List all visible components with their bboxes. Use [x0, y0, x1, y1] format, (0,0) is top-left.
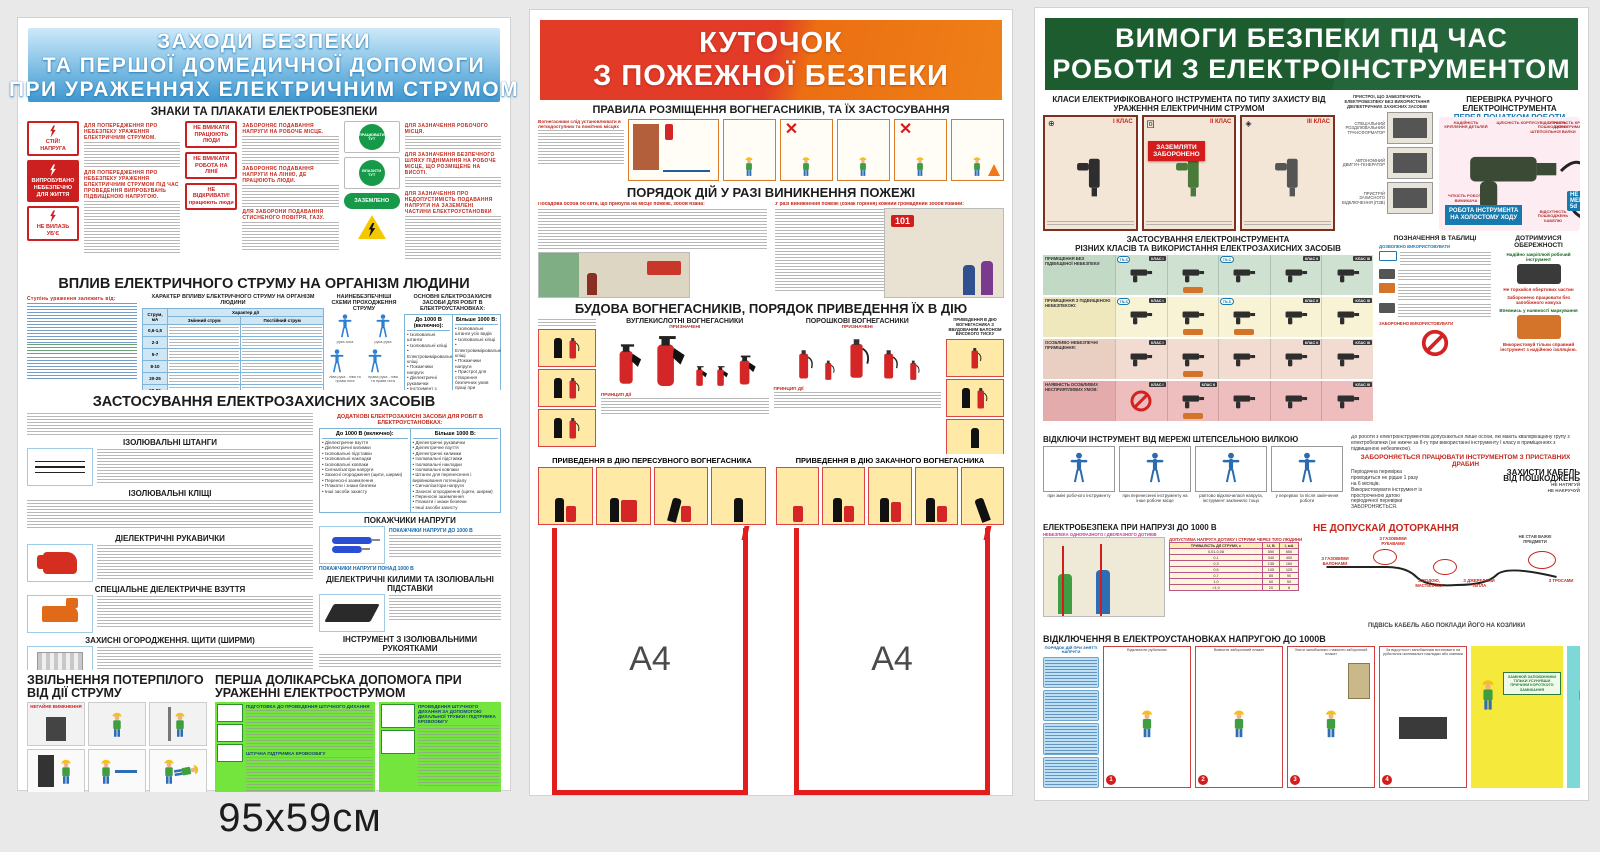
illegible-text [27, 344, 137, 356]
drill-icon [1335, 267, 1361, 283]
sign-do-not-open: НЕ ВІДКРИВАТИ!працюють люди [185, 183, 237, 210]
a4-pocket-right[interactable]: A4 [794, 528, 990, 795]
generator-image [1387, 147, 1433, 179]
admission-paragraph: Використовувати інструмент із прострочен… [1351, 488, 1424, 511]
list-item: Ізолювальні кліщі [407, 343, 450, 348]
step-pictogram [946, 339, 1004, 377]
poster1-header: ЗАХОДИ БЕЗПЕКИ ТА ПЕРШОЇ ДОМЕДИЧНОЇ ДОПО… [28, 28, 500, 102]
list-item: Штанги для перенесення і вирівнювання по… [413, 472, 499, 483]
procedure-step-box [1043, 723, 1099, 754]
mini-heading: ДЛЯ ПОПЕРЕДЖЕННЯ ПРО НЕБЕЗПЕКУ УРАЖЕННЯ … [84, 123, 180, 141]
powder-extinguisher-icon [821, 356, 836, 384]
sign-do-not-switch-on-people: НЕ ВМИКАТИПРАЦЮЮТЬ ЛЮДИ [185, 121, 237, 148]
table-row: 20-25 [143, 373, 324, 385]
rcd-image [1387, 182, 1433, 214]
rescue-illustration: НЕГАЙНЕ ВИМКНЕННЯ [27, 702, 85, 746]
hazard-ring [1433, 559, 1457, 575]
grinder-icon [1274, 155, 1302, 199]
poster-fire-safety: КУТОЧОК З ПОЖЕЖНОЇ БЕЗПЕКИ ПРАВИЛА РОЗМІ… [530, 10, 1012, 795]
extinguishing-pictogram [951, 119, 1004, 181]
drill-icon [1231, 309, 1257, 325]
subsection-shields: ЗАХИСНІ ОГОРОДЖЕННЯ. ЩИТИ (ШИРМИ) [27, 636, 313, 645]
worker-icon [1477, 674, 1499, 714]
devices-title: ПРИСТРОЇ, ЩО ЗАБЕЗПЕЧУЮТЬ ЕЛЕКТРОБЕЗПЕКУ… [1341, 95, 1433, 109]
sign-work-here: ПРАЦЮВАТИ ТУТ [344, 121, 400, 153]
low-voltage-section: ЕЛЕКТРОБЕЗПЕКА ПРИ НАПРУЗІ ДО 1000 В НЕБ… [1043, 523, 1580, 631]
glove-icon [1183, 371, 1203, 377]
illegible-text [538, 209, 767, 249]
list-item: Електровимірювальні кліщі [455, 342, 498, 358]
step-4-card: За відсутності запобіжників встановити н… [1379, 646, 1467, 788]
illegible-text [389, 595, 501, 621]
subsection-boots: СПЕЦІАЛЬНЕ ДІЕЛЕКТРИЧНЕ ВЗУТТЯ [27, 585, 313, 594]
no-touching-title: НЕ ДОПУСКАЙ ДОТОРКАННЯ [1313, 523, 1580, 534]
sign-grounded: ЗАЗЕМЛЕНО [344, 193, 400, 209]
glove-icon [1183, 329, 1203, 335]
illegible-text [242, 222, 338, 252]
glove-icon [1234, 329, 1254, 335]
illegible-text [84, 201, 180, 253]
poster2-title-line2: З ПОЖЕЖНОЇ БЕЗПЕКИ [593, 60, 949, 93]
cable-protect-title: ЗАХИСТИ КАБЕЛЬВІД ПОШКОДЖЕНЬ [1430, 470, 1580, 482]
drill-icon [1283, 393, 1309, 409]
current-effect-table-block: ХАРАКТЕР ВПЛИВУ ЕЛЕКТРИЧНОГО СТРУМУ НА О… [142, 294, 324, 390]
scheme-figure: рука-нога [337, 314, 354, 348]
class-1-card: ⊕ І КЛАС [1043, 115, 1138, 231]
dielectric-mat-image [319, 594, 385, 632]
worker-icon [856, 154, 870, 178]
illegible-text [97, 449, 313, 483]
step-card [538, 467, 593, 525]
poster1-title-line1: ЗАХОДИ БЕЗПЕКИ [157, 30, 371, 53]
illegible-text [405, 177, 501, 189]
switch-image [1399, 717, 1447, 739]
worker-icon [108, 709, 126, 739]
protective-equipment-icon [1379, 283, 1395, 293]
wire-danger-panel: НЕБЕЗПЕЧНО ТРИМАТИСЯ РУКОЮ ЗА ЕЛЕКТРИЧНИ… [1567, 646, 1580, 788]
drill-icon [1231, 393, 1257, 409]
illegible-text [319, 654, 501, 668]
drill-icon [1231, 351, 1257, 367]
co2-extinguishers-row [601, 332, 769, 390]
admission-paragraph: До роботи з електроінструментом допускаю… [1351, 435, 1580, 452]
chuck-image [1517, 264, 1561, 284]
illegible-text [97, 596, 313, 628]
worker-icon [171, 709, 189, 739]
step-2-card: Вивісити заборонний плакат 2 [1195, 646, 1283, 788]
lv-title: ЕЛЕКТРОБЕЗПЕКА ПРИ НАПРУЗІ ДО 1000 В [1043, 523, 1305, 532]
unplug-title: ВІДКЛЮЧИ ІНСТРУМЕНТ ВІД МЕРЕЖІ ШТЕПСЕЛЬН… [1043, 435, 1343, 444]
drill-icon [1128, 351, 1154, 367]
class1-symbol-icon: ⊕ [1048, 119, 1055, 128]
step-card [822, 467, 865, 525]
caution-title: ДОТРИМУЙСЯОБЕРЕЖНОСТІ [1497, 235, 1580, 249]
illegible-text [97, 647, 313, 670]
powder-extinguishers-title: ПОРОШКОВІ ВОГНЕГАСНИКИ [774, 318, 942, 325]
unplug-pictogram: при перенесенні інструменту на інше робо… [1119, 446, 1191, 503]
subsection-pliers: ІЗОЛЮВАЛЬНІ КЛІЩІ [27, 489, 313, 498]
signs-column-1: СТІЙ!НАПРУГА ВИПРОБУВАНОНЕБЕЗПЕЧНОДЛЯ ЖИ… [27, 121, 79, 271]
drill-icon [1180, 309, 1206, 325]
list-item: Інструмент з ізоляційним покриттям [407, 386, 450, 390]
illegible-text [538, 319, 596, 327]
poster1-title-line2: ТА ПЕРШОЇ ДОМЕДИЧНОЇ ДОПОМОГИ [43, 54, 485, 77]
influence-section-title: ВПЛИВ ЕЛЕКТРИЧНОГО СТРУМУ НА ОРГАНІЗМ ЛЮ… [27, 276, 501, 292]
co2-extinguishers-title: ВУГЛЕКИСЛОТНІ ВОГНЕГАСНИКИ [601, 318, 769, 325]
list-item: Пристрої для створення безпечних умов пр… [455, 369, 498, 390]
fire-procedure-section: Посадова особа об'єкта, що прибула на мі… [538, 202, 1004, 298]
current-effect-rows: 0,6-1,5 2-3 5-7 8-10 20-25 50-80 [143, 325, 324, 391]
step-card [961, 467, 1004, 525]
list-item: Електровимірювальні кліщі [407, 348, 450, 364]
voltage-tester-image [319, 526, 385, 564]
step-pictogram [538, 409, 596, 447]
basic-upto-list: Ізолювальні штангиІзолювальні кліщіЕлект… [407, 332, 450, 390]
illegible-text [242, 185, 338, 207]
illegible-text [27, 357, 137, 381]
list-item: Ізолювальні штанги усіх видів [455, 326, 498, 337]
worker-icon [1137, 706, 1157, 740]
co2-extinguisher-icon [649, 332, 687, 390]
drill-icon [1283, 351, 1309, 367]
worker-icon [970, 154, 984, 178]
insulating-rods-image [27, 448, 93, 486]
tool-classes-section: КЛАСИ ЕЛЕКТРИФІКОВАНОГО ІНСТРУМЕНТА ПО Т… [1043, 95, 1580, 231]
fuse-warning-box: ЗАМІНЮЙ ЗАПОБІЖНИКИ ТІЛЬКИ УСУНУВШИ ПРИЧ… [1503, 672, 1561, 695]
pump-extinguisher-title: ПРИВЕДЕННЯ В ДІЮ ЗАКАЧНОГО ВОГНЕГАСНИКА [776, 456, 1004, 465]
influence-section: Ступінь ураження залежить від: ХАРАКТЕР … [27, 294, 501, 390]
co2-extinguisher-icon [613, 338, 643, 390]
fuse-replacement-panel: ЗАМІНЮЙ ЗАПОБІЖНИКИ ТІЛЬКИ УСУНУВШИ ПРИЧ… [1471, 646, 1563, 788]
class2-symbol-icon: 回 [1147, 119, 1155, 130]
placement-diagram-card [628, 119, 719, 181]
extinguisher-icon [565, 375, 581, 401]
procedure-step-box [1043, 690, 1099, 721]
mini-heading: ДЛЯ ПОПЕРЕДЖЕННЯ ПРО НЕБЕЗПЕКУ УРАЖЕННЯ … [84, 170, 180, 200]
extinguisher-structure-title: БУДОВА ВОГНЕГАСНИКІВ, ПОРЯДОК ПРИВЕДЕННЯ… [538, 301, 1004, 316]
list-item: Покажчики напруги [455, 358, 498, 369]
usage-matrix-section: ЗАСТОСУВАННЯ ЕЛЕКТРОІНСТРУМЕНТАРІЗНИХ КЛ… [1043, 235, 1580, 431]
illegible-text [389, 535, 501, 557]
prohibited-icon [1129, 389, 1153, 413]
person-icon [1145, 452, 1165, 486]
matrix-row-especially-dangerous: ОСОБЛИВО НЕБЕЗПЕЧНІ ПРИМІЩЕННЯ: КЛАС І К… [1043, 339, 1373, 379]
table-row: 0,6-1,5 [143, 325, 324, 337]
rescue-illustration [27, 749, 85, 792]
procedure-step-box [1043, 757, 1099, 788]
transformer-image [1387, 112, 1433, 144]
sign-stop-voltage: СТІЙ!НАПРУГА [27, 121, 79, 156]
illegible-text [84, 142, 180, 168]
tool-icon [1379, 269, 1395, 279]
list-item: Ізолювальні кліщі [455, 337, 498, 342]
worker-icon [57, 756, 75, 786]
poster3-title-line2: РОБОТИ З ЕЛЕКТРОІНСТРУМЕНТОМ [1052, 54, 1570, 85]
table-row: 8-10 [143, 361, 324, 373]
dielectric-gloves-image [27, 544, 93, 582]
illegible-text [601, 398, 769, 414]
sidebar-title: ПОРЯДОК ДІЙ ПРИ ЗНЯТТІ НАПРУГИ [1043, 646, 1099, 655]
worker-icon [799, 154, 813, 178]
victim-icon [171, 760, 204, 783]
disconnect-title: ВІДКЛЮЧЕННЯ В ЕЛЕКТРОУСТАНОВКАХ НАПРУГОЮ… [1043, 634, 1580, 644]
usage-title: ЗАСТОСУВАННЯ ЕЛЕКТРОІНСТРУМЕНТАРІЗНИХ КЛ… [1043, 235, 1373, 253]
powder-extinguisher-icon [878, 344, 900, 384]
placement-pictograms: Вогнегасники слід установлювати в легкод… [538, 119, 1004, 181]
hazard-ring [1373, 549, 1397, 565]
illegible-text [774, 392, 942, 408]
subsection-insulated-tools: ІНСТРУМЕНТ З ІЗОЛЮВАЛЬНИМИ РУКОЯТКАМИ [319, 635, 501, 653]
poster-electric-safety: ЗАХОДИ БЕЗПЕКИ ТА ПЕРШОЇ ДОМЕДИЧНОЇ ДОПО… [18, 18, 510, 790]
illegible-text [405, 136, 501, 150]
step-card [711, 467, 766, 525]
high-pressure-title: ПРИВЕДЕННЯ В ДІЮ ВОГНЕГАСНИКА З ВБУДОВАН… [946, 318, 1004, 337]
drill-icon [1180, 351, 1206, 367]
person-icon [337, 314, 353, 340]
list-item: Ізолювальні штанги [407, 332, 450, 343]
tool-check-panel: НАДІЙНІСТЬ КРІПЛЕННЯ ДЕТАЛЕЙ ЦІЛІСНІСТЬ … [1439, 117, 1580, 231]
lightning-icon [49, 125, 57, 138]
scheme-figure: ліва рука - ліва та права нога [329, 349, 361, 383]
step-1-card: Відключити рубильник 1 [1103, 646, 1191, 788]
protective-shield-image [27, 646, 93, 670]
signs-text-2: ЗАБОРОНЯЄ ПОДАВАННЯ НАПРУГИ НА РОБОЧЕ МІ… [242, 121, 338, 271]
table-row: 2-3 [143, 337, 324, 349]
step-pictogram [538, 329, 596, 367]
prohibited-icon [1420, 328, 1450, 358]
step-card [868, 467, 911, 525]
fire-icon [988, 164, 1000, 176]
additional-protection-title: ДОДАТКОВІ ЕЛЕКТРОЗАХИСНІ ЗАСОБИ ДЛЯ РОБІ… [319, 414, 501, 426]
additional-upto-list: Діелектричне взуттяДіелектричні килимкиІ… [322, 440, 408, 494]
powder-extinguisher-icon [842, 332, 872, 384]
first-aid-panel-breathing: ПІДГОТОВКА ДО ПРОВЕДЕННЯ ШТУЧНОГО ДИХАНН… [215, 702, 375, 792]
rescue-illustration [88, 749, 146, 792]
lightning-icon [49, 164, 57, 177]
signs-column-2: НЕ ВМИКАТИПРАЦЮЮТЬ ЛЮДИ НЕ ВМИКАТИРОБОТА… [185, 121, 237, 271]
person-icon [1297, 452, 1317, 486]
rescue-illustration [88, 702, 146, 746]
rescue-title: ЗВІЛЬНЕННЯ ПОТЕРПІЛОГО ВІД ДІЇ СТРУМУ [27, 674, 207, 700]
disconnect-section: ВІДКЛЮЧЕННЯ В ЕЛЕКТРОУСТАНОВКАХ НАПРУГОЮ… [1043, 634, 1580, 792]
emergency-number: 101 [891, 215, 914, 227]
powder-extinguisher-icon [906, 356, 921, 384]
subsection-rods: ІЗОЛЮВАЛЬНІ ШТАНГИ [27, 438, 313, 447]
glove-icon [1183, 287, 1203, 293]
touch-voltage-table: ТРИВАЛІСТЬ ДІЇ СТРУМУ, сU, ВI, мА 0,01-0… [1169, 542, 1299, 591]
drill-icon [1231, 267, 1257, 283]
basic-above-list: Ізолювальні штанги усіх видівІзолювальні… [455, 326, 498, 390]
dielectric-boots-image [27, 595, 93, 633]
illegible-text [246, 757, 373, 791]
glove-icon [1183, 413, 1203, 419]
device-transformer: СПЕЦІАЛЬНИЙ РОЗДІЛЮВАЛЬНИЙ ТРАНСФОРМАТОР [1341, 112, 1433, 144]
step-pictogram [946, 419, 1004, 454]
procedure-step-box [1043, 657, 1099, 688]
lightning-icon [367, 223, 377, 237]
sign-dont-climb: НЕ ВИЛАЗЬУБ'Є [27, 206, 79, 241]
drill-icon [1335, 309, 1361, 325]
matrix-row-normal: ПРИМІЩЕННЯ БЕЗ ПІДВИЩЕНОЇ НЕБЕЗПЕКИ КЛАС… [1043, 255, 1373, 295]
extinguisher-icon [565, 415, 581, 441]
step-card [915, 467, 958, 525]
unplug-pictogram: раптово відключилася напруга, інструмент… [1195, 446, 1267, 503]
a4-pockets: A4 A4 [530, 528, 1012, 795]
subsection-mats: ДІЕЛЕКТРИЧНІ КИЛИМИ ТА ІЗОЛЮВАЛЬНІ ПІДСТ… [319, 575, 501, 593]
apply-section: ІЗОЛЮВАЛЬНІ ШТАНГИ ІЗОЛЮВАЛЬНІ КЛІЩІ ДІЕ… [27, 412, 501, 670]
table-row: 50-80 [143, 385, 324, 391]
list-item: Діелектричні рукавички [407, 375, 450, 386]
signs-text-3: ДЛЯ ЗАЗНАЧЕННЯ РОБОЧОГО МІСЦЯ. ДЛЯ ЗАЗНА… [405, 121, 501, 271]
high-voltage-triangle-icon [358, 215, 386, 239]
step-card [776, 467, 819, 525]
chainsaw-icon [1175, 155, 1203, 199]
scheme-figure: рука-рука [375, 314, 392, 348]
sign-tested-danger: ВИПРОБУВАНОНЕБЕЗПЕЧНОДЛЯ ЖИТТЯ [27, 160, 79, 202]
usage-pictogram [837, 119, 890, 181]
additional-protection-table: До 1000 В (включно): Діелектричне взуття… [319, 428, 501, 513]
grounding-forbidden-badge: ЗАЗЕМЛЯТИ ЗАБОРОНЕНО [1148, 141, 1205, 161]
person-icon [329, 349, 345, 375]
person-icon [1221, 452, 1241, 486]
co2-extinguisher-icon [693, 362, 708, 390]
mobile-extinguisher-title: ПРИВЕДЕННЯ В ДІЮ ПЕРЕСУВНОГО ВОГНЕГАСНИК… [538, 456, 766, 465]
signs-section: СТІЙ!НАПРУГА ВИПРОБУВАНОНЕБЕЗПЕЧНОДЛЯ ЖИ… [27, 121, 501, 271]
step-card [654, 467, 709, 525]
drill-diagram [1457, 147, 1567, 211]
hazard-ring [1528, 551, 1556, 569]
fire-procedure-title: ПОРЯДОК ДІЙ У РАЗІ ВИНИКНЕННЯ ПОЖЕЖІ [538, 185, 1004, 200]
illegible-text [27, 413, 313, 435]
unplug-section: ВІДКЛЮЧИ ІНСТРУМЕНТ ВІД МЕРЕЖІ ШТЕПСЕЛЬН… [1043, 435, 1580, 521]
sign-climb-here: ВЛАЗИТИ ТУТ [344, 157, 400, 189]
table-row: 5-7 [143, 349, 324, 361]
powder-extinguisher-icon [793, 344, 815, 384]
worker-icon [97, 756, 115, 786]
extinguisher-icon [967, 345, 983, 371]
worker-icon [913, 154, 927, 178]
step-card [596, 467, 651, 525]
drill-icon [1128, 267, 1154, 283]
illegible-text [246, 710, 373, 750]
subsection-gloves: ДІЕЛЕКТРИЧНІ РУКАВИЧКИ [27, 534, 313, 543]
co2-extinguisher-icon [714, 362, 729, 390]
drill-icon [1128, 309, 1154, 325]
tn-system-icon [1379, 251, 1397, 261]
legend-title: ПОЗНАЧЕННЯ В ТАБЛИЦІ [1379, 235, 1491, 242]
x-mark-icon: ✕ [785, 122, 798, 138]
class3-symbol-icon: ◈ [1245, 119, 1251, 128]
list-item: Покажчики напруги [407, 364, 450, 375]
rescue-illustration [149, 749, 207, 792]
extinguisher-icon [565, 335, 581, 361]
illegible-text [538, 130, 624, 164]
first-aid-panel-tube: ПРОВЕДЕННЯ ШТУЧНОГО ДИХАННЯ ЗА ДОПОМОГОЮ… [379, 702, 501, 792]
device-generator: АВТОНОМНИЙ ДВИГУН-ГЕНЕРАТОР [1341, 147, 1433, 179]
unplug-pictogram: у перервах та після закінчення роботи [1271, 446, 1343, 503]
drill-icon [1180, 267, 1206, 283]
mini-heading: ЗАБОРОНЯЄ ПОДАВАННЯ НАПРУГИ НА ЛІНІЮ, ДЕ… [242, 166, 338, 184]
poster2-title-line1: КУТОЧОК [699, 27, 843, 60]
list-item: Інші засоби захисту [413, 505, 499, 510]
person-icon [1069, 452, 1089, 486]
worker-icon [1229, 706, 1249, 740]
subsection-indicators: ПОКАЖЧИКИ НАПРУГИ [319, 516, 501, 525]
class-2-card: 回 ІІ КЛАС [1142, 115, 1237, 231]
drill-icon [1335, 351, 1361, 367]
powder-extinguishers-row [774, 332, 942, 384]
current-path-schemes: НАЙНЕБЕЗПЕЧНІШІ СХЕМИ ПРОХОДЖЕННЯ СТРУМУ… [329, 294, 399, 390]
influence-factors-text: Ступінь ураження залежить від: [27, 294, 137, 390]
first-aid-title: ПЕРША ДОЛІКАРСЬКА ДОПОМОГА ПРИ УРАЖЕННІ … [215, 674, 501, 700]
drill-icon [1076, 155, 1104, 199]
step-pictogram [946, 379, 1004, 417]
poster3-title-line1: ВИМОГИ БЕЗПЕКИ ПІД ЧАС [1115, 23, 1508, 54]
poster1-title-line3: ПРИ УРАЖЕННЯХ ЕЛЕКТРИЧНИМ СТРУМОМ [9, 78, 519, 101]
signs-text-1: ДЛЯ ПОПЕРЕДЖЕННЯ ПРО НЕБЕЗПЕКУ УРАЖЕННЯ … [84, 121, 180, 271]
call-101-illustration: 101 [884, 208, 1004, 298]
illegible-text [405, 216, 501, 260]
first-aid-bottom-section: ЗВІЛЬНЕННЯ ПОТЕРПІЛОГО ВІД ДІЇ СТРУМУ НЕ… [27, 674, 501, 792]
apply-section-title: ЗАСТОСУВАННЯ ЕЛЕКТРОЗАХИСНИХ ЗАСОБІВ [27, 394, 501, 410]
illegible-text [97, 545, 313, 579]
rescue-illustration [149, 702, 207, 746]
worker-icon [742, 154, 756, 178]
grinder-image [1517, 315, 1561, 339]
worker-icon [1573, 674, 1580, 714]
list-item: Інші засоби захисту [322, 489, 408, 494]
drill-icon [1283, 309, 1309, 325]
idle-run-badge: РОБОТА ІНСТРУМЕНТА НА ХОЛОСТОМУ ХОДУ [1445, 205, 1522, 225]
extinguisher-structure-section: ВУГЛЕКИСЛОТНІ ВОГНЕГАСНИКИ ПРИЗНАЧЕНІ ПР… [538, 318, 1004, 454]
scheme-figure: права рука - ліва та права нога [367, 349, 399, 383]
prohibited-pictogram: ✕ [780, 119, 833, 181]
drill-icon [1283, 267, 1309, 283]
person-icon [375, 314, 391, 340]
signs-column-3: ПРАЦЮВАТИ ТУТ ВЛАЗИТИ ТУТ ЗАЗЕМЛЕНО [344, 121, 400, 271]
matrix-row-increased: ПРИМІЩЕННЯ З ПІДВИЩЕНОЮ НЕБЕЗПЕКОЮ: КЛАС… [1043, 297, 1373, 337]
classes-title: КЛАСИ ЕЛЕКТРИФІКОВАНОГО ІНСТРУМЕНТА ПО Т… [1043, 95, 1335, 113]
illegible-text [27, 303, 137, 343]
drill-icon [1180, 393, 1206, 409]
illegible-text [242, 136, 338, 164]
person-icon [367, 349, 383, 375]
extinguisher-rules-title: ПРАВИЛА РОЗМІЩЕННЯ ВОГНЕГАСНИКІВ, ТА ЇХ … [538, 104, 1004, 116]
mini-heading: ДЛЯ ЗАЗНАЧЕННЯ ПРО НЕДОПУСТИМІСТЬ ПОДАВА… [405, 191, 501, 215]
illegible-text [418, 725, 499, 787]
step-pictogram [538, 369, 596, 407]
admission-paragraph: Періодична перевірка проводиться не рідш… [1351, 470, 1424, 487]
contact-danger-illustration [1043, 537, 1165, 617]
x-mark-icon: ✕ [899, 122, 912, 138]
poster2-header: КУТОЧОК З ПОЖЕЖНОЇ БЕЗПЕКИ [540, 20, 1002, 100]
basic-protection-block: ОСНОВНІ ЕЛЕКТРОЗАХИСНІ ЗАСОБИ ДЛЯ РОБІТ … [404, 294, 501, 390]
ladders-warning: ЗАБОРОНЯЄТЬСЯ ПРАЦЮВАТИ ІНСТРУМЕНТОМ З П… [1351, 454, 1580, 468]
poster3-header: ВИМОГИ БЕЗПЕКИ ПІД ЧАС РОБОТИ З ЕЛЕКТРОІ… [1045, 18, 1578, 90]
stand-size-label: 95x59см [150, 796, 450, 841]
usage-pictogram [723, 119, 776, 181]
current-effect-table: Струм, мАХарактер дії Змінний струмПості… [142, 308, 324, 390]
lightning-icon [49, 210, 57, 223]
mini-heading: ДЛЯ ЗАБОРОНИ ПОДАВАННЯ СТИСНЕНОГО ПОВІТР… [242, 209, 338, 221]
mini-heading: ЗАБОРОНЯЄ ПОДАВАННЯ НАПРУГИ НА РОБОЧЕ МІ… [242, 123, 338, 135]
extinguisher-icon [973, 385, 989, 411]
fire-scene-illustration [538, 252, 690, 298]
mini-heading: ДЛЯ ЗАЗНАЧЕННЯ БЕЗПЕЧНОГО ШЛЯХУ ПІДНІМАН… [405, 152, 501, 176]
a4-pocket-left[interactable]: A4 [552, 528, 748, 795]
fuse-panel-image [1348, 663, 1370, 699]
class-3-card: ◈ ІІІ КЛАС [1240, 115, 1335, 231]
